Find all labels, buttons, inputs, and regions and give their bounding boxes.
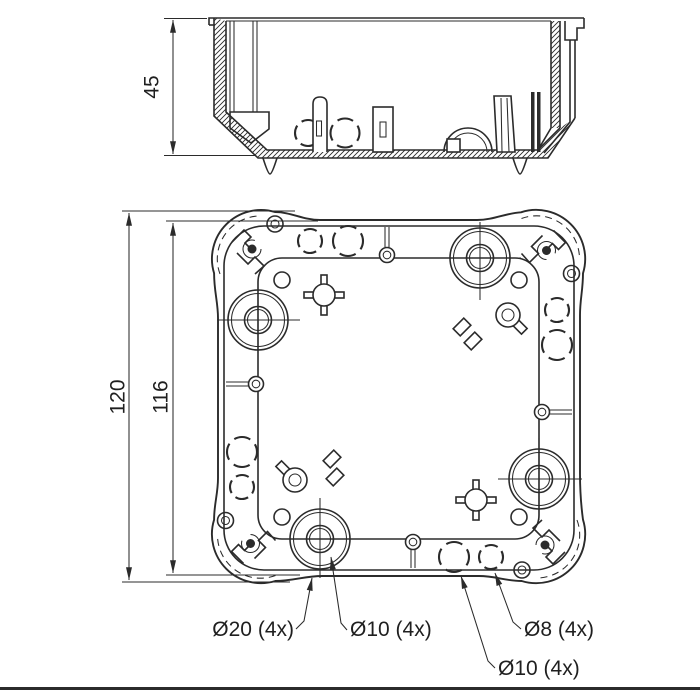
sheet-border-line (0, 687, 700, 690)
rib-bar-2 (537, 92, 541, 152)
callout-o20: Ø20 (4x) (212, 618, 294, 641)
cross-boss-bottom-right (456, 480, 496, 520)
callout-o10-pilot: Ø10 (4x) (350, 618, 432, 641)
leader-o10-side (461, 576, 495, 668)
knockout-bottom (279, 498, 361, 578)
diamond-marks (323, 318, 482, 486)
screw-post-left (313, 97, 327, 152)
dim-text-116: 116 (150, 380, 173, 413)
mounting-lug (565, 18, 584, 40)
small-hole-br (511, 509, 527, 525)
knockout-right (498, 438, 582, 520)
side-knockouts (227, 226, 572, 572)
screw-bosses (226, 227, 572, 568)
side-knockout-left-small (230, 475, 254, 499)
small-hole-bl (274, 509, 290, 525)
large-knockouts (217, 222, 582, 578)
knockout-left (217, 287, 300, 353)
left-foot (263, 158, 277, 174)
leader-o10-pilot (331, 557, 347, 630)
claw-screw-dot (248, 245, 257, 254)
screw-post-right (494, 96, 515, 152)
side-knockout-left-large (227, 437, 257, 467)
dim-text-45: 45 (141, 75, 164, 98)
technical-drawing: 45 (0, 0, 700, 700)
dim-text-120: 120 (107, 379, 130, 414)
right-foot (513, 158, 527, 174)
arch-step (447, 139, 460, 152)
wall-knockout-section-2 (331, 119, 360, 148)
center-post (373, 107, 393, 152)
cross-boss-top-left (304, 275, 344, 315)
leader-o20 (296, 578, 312, 629)
side-knockout-bottom-small (479, 545, 503, 569)
right-wall-hatch (551, 21, 560, 128)
side-knockout-right-large (542, 330, 572, 360)
side-knockout-bottom-large (439, 542, 469, 572)
keyhole-left (276, 461, 307, 492)
box-inner-wall (224, 226, 574, 570)
side-knockout-top-small (298, 229, 322, 253)
side-knockout-top-large (333, 226, 363, 256)
floor-plate (258, 258, 539, 539)
dimension-overall: 120 (107, 211, 295, 582)
plan-view: 120 116 Ø20 (4x) Ø10 (4x) Ø8 (4x) Ø10 (4… (107, 210, 594, 680)
left-wall-hatch (214, 18, 226, 116)
rib-bar-1 (531, 92, 535, 152)
corner-screw-outer (267, 216, 283, 232)
corner-rib-lines (230, 21, 257, 112)
knockout-top (439, 222, 521, 300)
box-outer-contour (212, 210, 585, 583)
section-view: 45 (141, 18, 584, 174)
outer-profile (214, 18, 575, 158)
small-hole-tl (274, 272, 290, 288)
keyhole-right (496, 303, 527, 334)
callout-o10-side: Ø10 (4x) (498, 657, 580, 680)
side-knockout-right-small (545, 298, 569, 322)
small-hole-tr (511, 272, 527, 288)
callout-o8: Ø8 (4x) (524, 618, 594, 641)
